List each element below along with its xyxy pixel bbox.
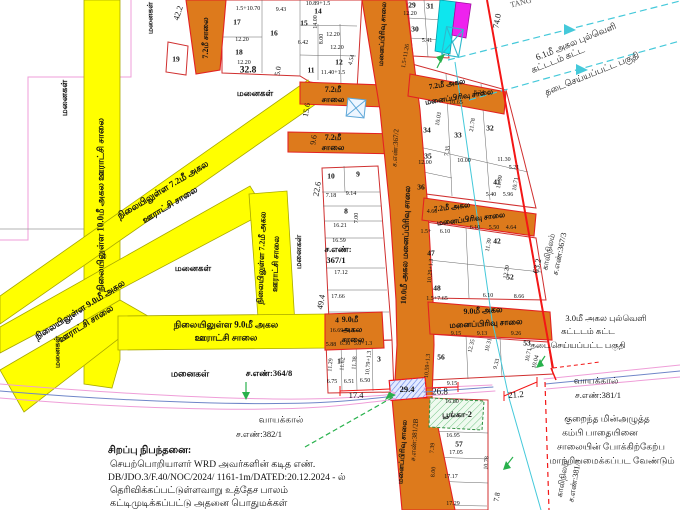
dimension: 10.04 <box>531 355 540 370</box>
survey-label: வாயக்கால் <box>259 416 304 425</box>
dimension: 10.31 <box>484 338 493 353</box>
dimension: 17.05 <box>449 450 463 456</box>
dimension: 9.43 <box>276 7 287 13</box>
annotation: கட்டடம் கட்ட <box>561 327 615 336</box>
dimension: 4.60 <box>427 209 438 215</box>
road-label: 9.0மீ அகல <box>463 306 502 316</box>
dimension: 7.00 <box>354 213 360 224</box>
dimension-major: 15.6 <box>302 102 312 117</box>
area-label: மனைகள் <box>53 336 61 368</box>
dimension: 10.65 <box>449 100 463 106</box>
dimension: 17.17 <box>444 474 458 480</box>
plot-number: 17 <box>233 18 241 26</box>
dimension: 8.00 <box>431 467 438 478</box>
dimension: 17.29 <box>446 501 460 507</box>
dimension: 12.20 <box>237 60 251 66</box>
layout-plan-map: நிலையிலுள்ள 10.0மீ அகல ஊராட்சி சாலைநிலைய… <box>0 0 680 510</box>
dimension: 5.96 <box>503 192 514 198</box>
plot-number: 42 <box>493 237 501 245</box>
plot-number: 48 <box>433 284 441 292</box>
annotation: மாற்றியமைக்கப்பட வேண்டும் <box>549 457 674 466</box>
dimension: 12.20 <box>326 32 340 38</box>
dimension-major: 63.2 <box>531 258 542 274</box>
dimension: 10.29+1.3 <box>427 259 435 284</box>
dimension-major: 26.8 <box>432 388 448 397</box>
dimension: 14.00 <box>313 15 319 29</box>
dimension: 10.78 <box>483 456 490 470</box>
dimension-major: 17.4 <box>349 391 364 400</box>
dimension: 6.50 <box>360 378 371 384</box>
plot-number: 57 <box>455 440 463 448</box>
dimension-major: 49.4 <box>316 294 327 310</box>
plot-number: 15 <box>300 19 308 27</box>
dimension: 6.75 <box>327 379 338 385</box>
dimension: 9.15 <box>447 381 458 387</box>
dimension: 17.12 <box>334 270 348 276</box>
road-label: 9.0மீ <box>342 316 358 324</box>
road-label: மனைப்பிரிவு சாலை <box>397 420 408 484</box>
dimension-major: 5.0 <box>273 66 282 77</box>
dimension-major: 7.8 <box>492 492 501 503</box>
dimension-major: 21.2 <box>508 390 524 400</box>
dimension: 6.10 <box>483 293 494 299</box>
dimension: 10.89+1.5 <box>306 1 330 7</box>
survey-label: வாயக்கால் <box>574 377 619 386</box>
annotation: தடைசெய்யப்பட்ட பகுதி <box>530 341 625 350</box>
road-label: ச.எண்:367/2 <box>392 129 401 167</box>
road-label: 7.2மீ சாலை <box>202 17 210 58</box>
dimension: 17.66 <box>331 294 345 300</box>
dimension: 16.95 <box>446 433 460 439</box>
dimension: 5.21 <box>509 165 520 171</box>
road-label: 7.2மீ அகல <box>428 77 465 90</box>
dimension: 12.20 <box>403 11 417 17</box>
dimension: 16.69+1.3 <box>330 328 354 334</box>
dimension: 7.18 <box>326 193 337 199</box>
dimension: 10.79+1.3 <box>365 351 373 376</box>
dimension: 6.10 <box>470 225 481 231</box>
dimension-major: 74.0 <box>492 13 503 29</box>
survey-label: 367/1 <box>326 256 345 265</box>
area-label: மனைகள் <box>237 89 273 98</box>
plot-number: 33 <box>454 131 462 139</box>
dimension: 1.5+ <box>421 229 432 235</box>
special-note-line: கட்டிமுடிக்கப்பட்டு அதனை பொதுமக்கள் <box>110 500 287 510</box>
area-label: மனைகள் <box>60 80 69 116</box>
dimension: 8.66 <box>514 294 525 300</box>
dimension-major: 9.6 <box>309 134 319 145</box>
dimension: 5.41 <box>422 38 433 44</box>
dimension-major: 32.8 <box>240 66 257 76</box>
plot-number: 53 <box>523 339 531 347</box>
survey-label: பூங்கா-2 <box>442 411 472 419</box>
dimension: 4.64 <box>506 225 517 231</box>
plot-number: 14 <box>314 7 322 15</box>
area-label: மனைகள் <box>171 370 209 379</box>
road-label: 7.2மீ அகல <box>433 201 470 213</box>
dimension: 16.80 <box>445 399 459 405</box>
dimension: 10.00 <box>457 158 471 164</box>
dimension: 11.38 <box>351 356 358 370</box>
road-label: 10.0மீ அகல மனைப்பிரிவு சாலை <box>400 186 412 305</box>
plot-number: 56 <box>437 353 445 361</box>
survey-label: ச.எண்:381/3 <box>567 459 582 503</box>
dimension: 1.5+11.26 <box>401 44 411 69</box>
road-label: மனைப்பிரிவு சாலை <box>378 2 388 66</box>
dimension: 10.71 <box>525 348 534 362</box>
plot-number: 35 <box>424 152 432 160</box>
special-note-line: DB/JDO.3/F.40/NOC/2024/ 1161-1m/DATED:20… <box>108 474 346 484</box>
road-label: 7.2மீ <box>325 134 341 142</box>
plot-number: 18 <box>235 48 243 56</box>
road-label: மனைப்பிரிவு சாலை <box>449 318 523 330</box>
dimension: 11.30 <box>496 175 504 189</box>
dimension: 6.30 <box>340 341 351 347</box>
annotation: கம்பி பாதையினை <box>562 429 638 438</box>
road-label: 7.2மீ <box>325 86 341 94</box>
dimension: 12.20 <box>235 37 249 43</box>
dimension: 10.03 <box>435 112 443 126</box>
area-label: மனைகள் <box>295 235 303 269</box>
road-label: ஊராட்சி சாலை <box>195 334 258 343</box>
special-note-line: தெரிவிக்கப்பட்டுள்ளவாறு உத்தேச பாலம் <box>110 487 288 497</box>
dimension: 11.29 <box>327 358 334 372</box>
dimension: 11.40+1.5 <box>321 70 345 76</box>
dimension: 16.59 <box>332 238 346 244</box>
plot-number: 12 <box>335 58 343 66</box>
plot-number: 36 <box>417 183 425 191</box>
road-label: சாலை <box>322 96 345 104</box>
dimension: 21.78 <box>469 118 477 132</box>
dimension: 5.50 <box>489 225 500 231</box>
dimension: 16.21 <box>333 223 347 229</box>
plot-number: 11 <box>307 66 314 74</box>
dimension: 6.42 <box>298 40 309 46</box>
survey-label: ச.எண்: <box>324 245 351 254</box>
plot-number: 29 <box>408 1 416 9</box>
dimension: 11.30 <box>485 238 493 252</box>
plot-number: 9 <box>356 170 360 178</box>
dimension: 5.40 <box>486 192 497 198</box>
plot-number: 47 <box>427 249 435 257</box>
road-label: சாலை <box>322 144 345 152</box>
dimension: 8.00 <box>319 34 325 45</box>
dimension-major: 22.6 <box>312 181 323 197</box>
dimension: 10.71 <box>512 177 520 191</box>
dimension: 5.88 <box>326 342 337 348</box>
road-label: நிலையிலுள்ள 9.0மீ அகல <box>174 321 278 330</box>
dimension: 12.35 <box>467 339 476 354</box>
dimension: 9.14 <box>346 191 357 197</box>
road-label: ஊராட்சி சாலை <box>271 236 281 292</box>
plot-number: 19 <box>172 55 180 63</box>
dimension: 6.51 <box>344 379 355 385</box>
plot-number: 34 <box>423 126 431 134</box>
dimension: 7.39 <box>430 443 437 454</box>
annotation: சாலையின் போக்கிற்கேற்ப <box>557 443 665 452</box>
dimension: 1.5+7.65 <box>426 296 447 302</box>
dimension: 9.33 <box>493 358 502 370</box>
dimension: 9.13 <box>477 331 488 337</box>
special-note-line: செயற்பொறியாளர் WRD அவர்களின் கடித எண். <box>110 461 315 471</box>
plot-number: 32 <box>486 124 494 132</box>
survey-label: ச.எண்:381/1 <box>575 391 621 400</box>
dimension-major: 42.2 <box>172 5 185 22</box>
plot-number: 16 <box>270 29 278 37</box>
dimension: 5.0+1.3 <box>354 341 372 347</box>
plot-number: 4 <box>335 316 339 324</box>
dimension: 8.24 <box>474 90 485 96</box>
plot-number: 3 <box>377 355 381 363</box>
dimension: 9.26 <box>511 331 522 337</box>
plot-number: 8 <box>344 207 348 215</box>
dimension: 9.15 <box>451 331 462 337</box>
survey-label: ச.எண்:364/8 <box>246 369 292 378</box>
dimension: 11.62 <box>339 357 346 371</box>
road-label: நிலையிலுள்ள 7.2மீ அகல <box>256 211 267 304</box>
plot-number: 30 <box>411 25 419 33</box>
dimension: 1.5+10.70 <box>236 6 260 12</box>
dimension: 6.10 <box>440 229 451 235</box>
special-note-heading: சிறப்பு நிபந்தனை: <box>108 446 191 456</box>
annotation: TANG <box>510 0 533 9</box>
road-label: ச.எண்:381/2B <box>410 419 420 462</box>
map-labels: நிலையிலுள்ள 10.0மீ அகல ஊராட்சி சாலைநிலைய… <box>0 0 680 510</box>
dimension: 4.54 <box>348 54 357 66</box>
plot-number: 31 <box>426 2 434 10</box>
dimension-major: 29.4 <box>400 385 415 394</box>
dimension: 11.30 <box>497 157 510 163</box>
annotation: 3.0மீ அகல புல்வெளி <box>565 314 646 323</box>
survey-label: ச.எண்:382/1 <box>236 430 282 439</box>
plot-number: 10 <box>327 172 335 180</box>
dimension: 7.35 <box>444 145 452 156</box>
dimension: 12.00 <box>418 160 432 166</box>
annotation: குறைந்த மின்அழுத்த <box>564 415 649 424</box>
dimension: 12.20 <box>330 45 344 51</box>
dimension: 10.59+1.3 <box>424 354 432 379</box>
area-label: மனைகள் <box>175 264 211 273</box>
area-label: மனைகள் <box>146 2 154 34</box>
road-label: நிலையிலுள்ள 10.0மீ அகல ஊராட்சி சாலை <box>97 118 106 292</box>
